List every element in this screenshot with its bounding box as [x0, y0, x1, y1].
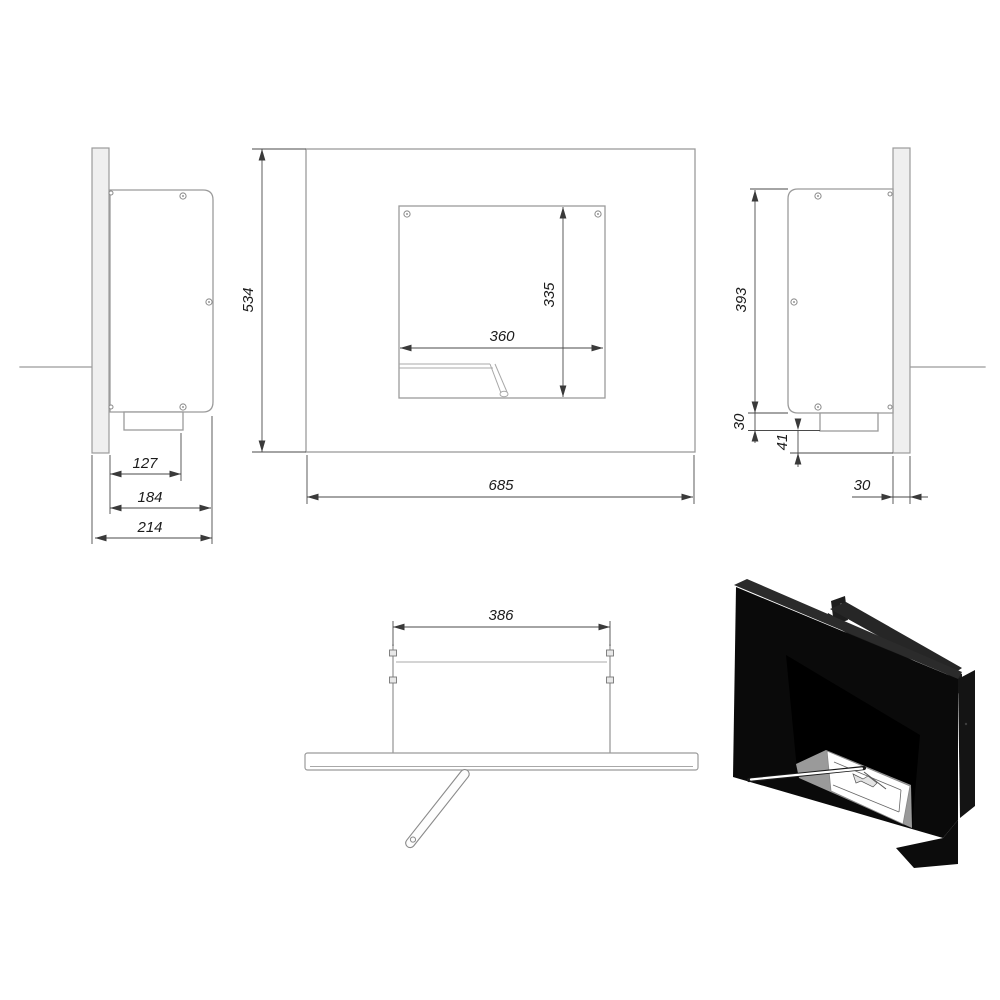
view-side-left: 127 184 214 — [20, 148, 213, 544]
side-left-dimensions: 127 184 214 — [92, 416, 212, 544]
burner-tray-side — [820, 413, 878, 431]
technical-drawing-canvas: 127 184 214 — [0, 0, 1000, 1000]
side-right-geometry — [788, 148, 985, 453]
bracket-clamps — [390, 650, 614, 683]
top-dimensions: 386 — [393, 607, 610, 646]
side-left-geometry — [20, 148, 213, 453]
front-opening — [399, 206, 605, 398]
front-geometry — [306, 149, 695, 452]
dim-label-127: 127 — [132, 455, 158, 472]
dim-label-386: 386 — [488, 607, 514, 624]
dim-label-360: 360 — [489, 328, 515, 345]
dim-label-30-tray: 30 — [731, 413, 748, 430]
wall-panel — [92, 148, 109, 453]
wall-panel — [893, 148, 910, 453]
dim-label-685: 685 — [488, 477, 514, 494]
dim-label-335: 335 — [541, 282, 558, 308]
fireplace-body-side — [110, 190, 213, 412]
view-front: 534 335 360 685 — [240, 149, 695, 504]
dim-label-41: 41 — [774, 434, 791, 451]
burner-tray-side — [124, 412, 183, 430]
dim-label-30-panel: 30 — [854, 477, 871, 494]
housing-side-right — [958, 670, 975, 818]
dim-label-214: 214 — [136, 519, 162, 536]
glass-panel-top — [305, 753, 698, 770]
dim-label-534: 534 — [240, 287, 257, 312]
fireplace-body-side — [788, 189, 893, 413]
top-geometry — [305, 645, 698, 849]
dim-label-393: 393 — [733, 287, 750, 313]
regulator-rod-top — [404, 768, 471, 850]
dim-label-184: 184 — [137, 489, 162, 506]
technical-drawing-page: 127 184 214 — [0, 0, 1000, 1000]
view-top: 386 — [305, 607, 698, 849]
render-3d-fireplace — [733, 579, 975, 868]
view-side-right: 393 30 41 30 — [731, 148, 985, 504]
